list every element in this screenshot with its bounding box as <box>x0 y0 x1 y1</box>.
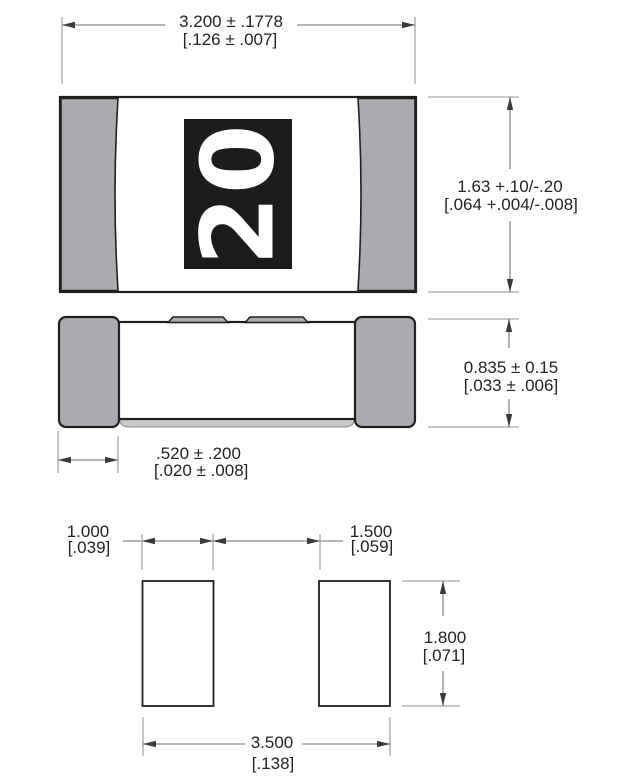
dim-pad-height-metric: 1.800 <box>424 628 467 647</box>
left-pad <box>143 581 214 706</box>
arrowhead-right-icon <box>200 538 213 544</box>
marking-text: 20 <box>180 122 297 265</box>
top-view: 20 <box>60 97 416 292</box>
dim-body-height-metric: 0.835 ± 0.15 <box>464 358 558 377</box>
dim-terminal-length-inch: [.020 ± .008] <box>154 461 248 480</box>
dim-pad-gap-inch: [.059] <box>351 537 394 556</box>
arrowhead-right-icon <box>307 538 320 544</box>
component-body-side-view <box>118 322 357 419</box>
dim-body-height-inch: [.033 ± .006] <box>464 376 558 395</box>
dim-body-length-inch: [.126 ± .007] <box>183 30 277 49</box>
left-end-cap <box>59 317 119 427</box>
arrowhead-down-icon <box>440 693 446 706</box>
right-pad <box>319 581 390 706</box>
dim-pad-width-and-gap: 1.000 [.039] 1.500 [.059] <box>67 522 394 570</box>
dim-body-width-inch: [.064 +.004/-.008] <box>444 195 578 214</box>
dim-body-width: 1.63 +.10/-.20 [.064 +.004/-.008] <box>428 97 578 292</box>
dim-pad-height-inch: [.071] <box>423 646 466 665</box>
dim-pad-span: 3.500 [.138] <box>143 717 390 773</box>
dim-body-height: 0.835 ± 0.15 [.033 ± .006] <box>428 319 558 427</box>
arrowhead-up-icon <box>506 319 512 332</box>
arrowhead-up-icon <box>440 581 446 594</box>
arrowhead-right-icon <box>105 457 118 463</box>
arrowhead-left-icon <box>58 457 71 463</box>
dim-pad-height: 1.800 [.071] <box>402 581 466 706</box>
drawing-canvas: 3.200 ± .1778 [.126 ± .007] 20 1.63 +.10… <box>0 0 640 780</box>
right-end-cap <box>355 317 415 427</box>
arrowhead-right-icon <box>402 22 415 28</box>
dim-body-length-metric: 3.200 ± .1778 <box>179 12 283 31</box>
arrowhead-left-icon <box>142 538 155 544</box>
dim-pad-span-inch: [.138] <box>252 754 295 773</box>
arrowhead-right-icon <box>377 741 390 747</box>
arrowhead-down-icon <box>507 279 513 292</box>
top-electrode-tab-right <box>245 317 308 323</box>
arrowhead-up-icon <box>507 97 513 110</box>
right-terminal <box>358 99 415 291</box>
arrowhead-left-icon <box>143 741 156 747</box>
top-electrode-tab-left <box>168 317 228 323</box>
arrowhead-down-icon <box>506 414 512 427</box>
dim-pad-width-inch: [.039] <box>68 538 111 557</box>
dim-terminal-length: .520 ± .200 [.020 ± .008] <box>58 431 248 480</box>
dim-pad-span-metric: 3.500 <box>251 733 294 752</box>
dim-body-length: 3.200 ± .1778 [.126 ± .007] <box>62 12 415 84</box>
arrowhead-left-icon <box>213 538 226 544</box>
left-terminal <box>61 99 118 291</box>
dimension-drawing: 3.200 ± .1778 [.126 ± .007] 20 1.63 +.10… <box>0 0 640 780</box>
arrowhead-left-icon <box>62 22 75 28</box>
bottom-electrode-strip <box>120 419 354 427</box>
land-pattern <box>143 581 391 706</box>
dim-body-width-metric: 1.63 +.10/-.20 <box>457 177 562 196</box>
side-view <box>59 317 415 427</box>
